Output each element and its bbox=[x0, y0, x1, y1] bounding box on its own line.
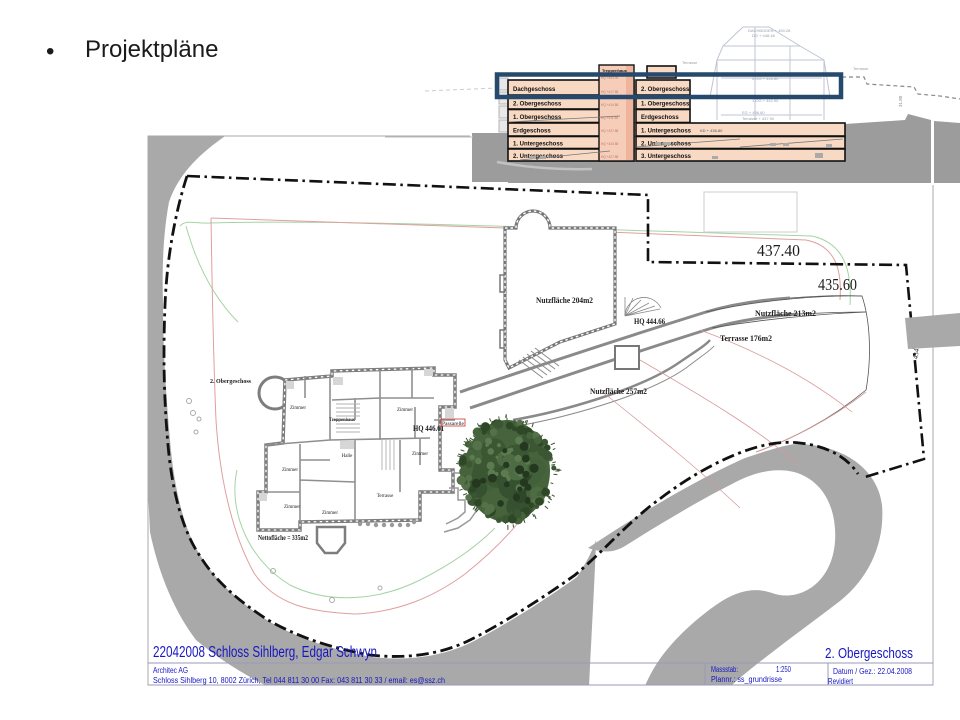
svg-text:Zimmer: Zimmer bbox=[290, 406, 306, 411]
svg-text:22042008 Schloss Sihlberg, Edg: 22042008 Schloss Sihlberg, Edgar Schwyn bbox=[153, 644, 377, 661]
svg-text:DG + 448.46: DG + 448.46 bbox=[752, 33, 776, 38]
svg-text:Terrasse + 437.90: Terrasse + 437.90 bbox=[742, 116, 775, 121]
svg-text:1:250: 1:250 bbox=[776, 665, 791, 674]
svg-text:Nutzfläche 204m2: Nutzfläche 204m2 bbox=[536, 296, 593, 305]
svg-text:Dachgeschoss: Dachgeschoss bbox=[513, 87, 556, 93]
svg-text:2. Obergeschoss: 2. Obergeschoss bbox=[825, 645, 913, 662]
svg-text:Terrasse 176m2: Terrasse 176m2 bbox=[720, 334, 772, 343]
svg-text:Terrasse: Terrasse bbox=[377, 494, 394, 499]
svg-text:HQ +417.88: HQ +417.88 bbox=[601, 90, 619, 94]
svg-text:Nutzfläche 213m2: Nutzfläche 213m2 bbox=[755, 309, 816, 318]
svg-text:3. Untergeschoss: 3. Untergeschoss bbox=[641, 154, 692, 160]
svg-text:Nettofläche = 335m2: Nettofläche = 335m2 bbox=[258, 534, 308, 542]
svg-text:Massstab:: Massstab: bbox=[711, 665, 738, 674]
svg-text:1. Untergeschoss: 1. Untergeschoss bbox=[513, 142, 564, 148]
svg-text:HQ +437.88: HQ +437.88 bbox=[601, 129, 619, 133]
svg-text:Treppenhaus: Treppenhaus bbox=[329, 418, 355, 423]
svg-text:Halle: Halle bbox=[342, 454, 354, 459]
svg-text:1. Obergeschoss: 1. Obergeschoss bbox=[641, 102, 690, 108]
svg-text:HQ +414.88: HQ +414.88 bbox=[601, 103, 619, 107]
svg-text:435.60: 435.60 bbox=[818, 275, 857, 294]
svg-text:HQ 446.61: HQ 446.61 bbox=[413, 424, 444, 433]
svg-text:2. Obergeschoss: 2. Obergeschoss bbox=[513, 102, 562, 108]
svg-text:Datum / Gez.: 22.04.2008: Datum / Gez.: 22.04.2008 bbox=[833, 667, 912, 676]
svg-text:Zimmer: Zimmer bbox=[282, 468, 298, 473]
svg-text:Schloss Sihlberg 10, 8002 Züri: Schloss Sihlberg 10, 8002 Zürich, Tel 04… bbox=[153, 675, 445, 685]
svg-text:Nutzfläche 257m2: Nutzfläche 257m2 bbox=[590, 387, 647, 396]
svg-text:2. Obergeschoss: 2. Obergeschoss bbox=[210, 379, 252, 385]
svg-text:1. Untergeschoss: 1. Untergeschoss bbox=[641, 129, 692, 135]
svg-text:Plannr.: ss_grundrisse: Plannr.: ss_grundrisse bbox=[711, 675, 782, 684]
svg-text:2. Untergeschoss: 2. Untergeschoss bbox=[513, 154, 564, 160]
svg-text:Zimmer: Zimmer bbox=[412, 452, 428, 457]
svg-text:KD + 436.80: KD + 436.80 bbox=[700, 128, 723, 133]
svg-text:HQ 444.66: HQ 444.66 bbox=[634, 317, 665, 326]
svg-text:Erdgeschoss: Erdgeschoss bbox=[641, 115, 679, 121]
svg-text:Revidiert: Revidiert bbox=[828, 677, 854, 686]
svg-text:2. Obergeschoss: 2. Obergeschoss bbox=[641, 87, 690, 93]
svg-text:Terrasse: Terrasse bbox=[682, 60, 698, 65]
svg-text:HQ +427.88: HQ +427.88 bbox=[601, 155, 619, 159]
svg-text:Zimmer: Zimmer bbox=[284, 505, 300, 510]
svg-text:Zimmer: Zimmer bbox=[322, 511, 338, 516]
svg-text:HQ +433.88: HQ +433.88 bbox=[601, 142, 619, 146]
svg-text:31.80: 31.80 bbox=[898, 95, 903, 107]
svg-text:Terrasse: Terrasse bbox=[853, 66, 869, 71]
svg-text:437.40: 437.40 bbox=[757, 241, 800, 260]
svg-text:Erdgeschoss: Erdgeschoss bbox=[513, 129, 551, 135]
svg-text:EG + 436.60: EG + 436.60 bbox=[742, 110, 765, 115]
svg-text:Architec AG: Architec AG bbox=[153, 665, 188, 675]
svg-text:Zimmer: Zimmer bbox=[397, 408, 413, 413]
